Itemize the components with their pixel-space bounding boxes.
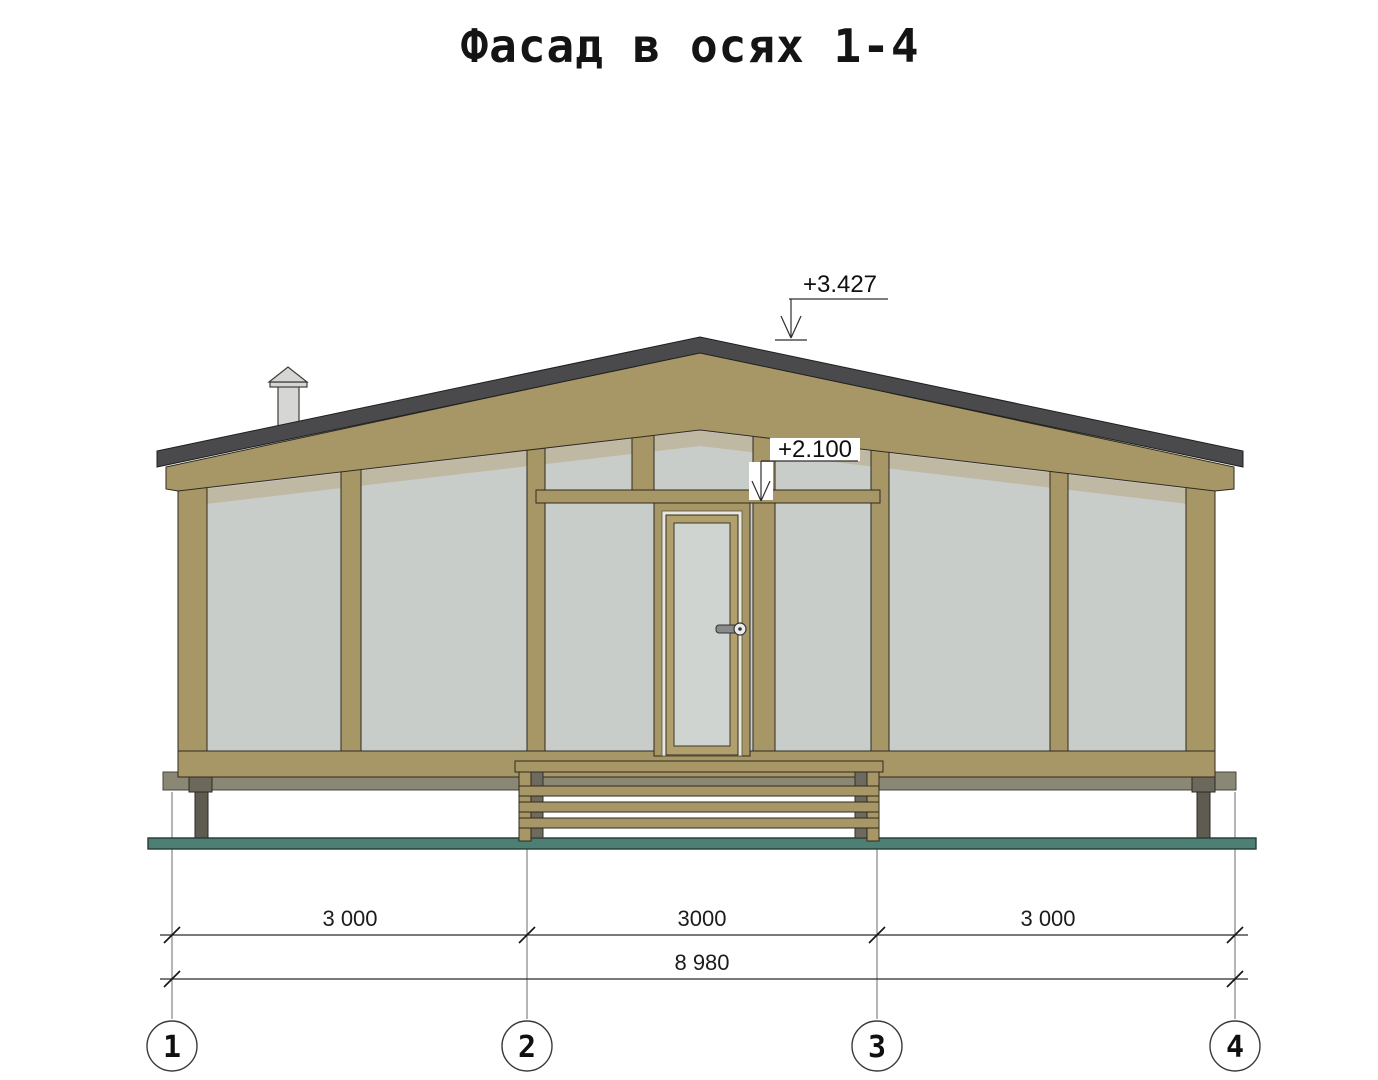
corner-post-right — [1186, 486, 1215, 757]
dim-value-1: 3 000 — [322, 906, 377, 931]
axis-label-2: 2 — [518, 1030, 536, 1065]
chimney-cap — [269, 367, 307, 382]
door-glazing — [674, 523, 730, 746]
entrance-door — [654, 503, 750, 756]
drawing-title: Фасад в осях 1-4 — [460, 19, 919, 73]
axis-label-1: 1 — [163, 1030, 181, 1065]
axis-label-4: 4 — [1226, 1030, 1244, 1065]
step-board — [519, 818, 879, 828]
step-board — [519, 786, 879, 796]
facade-drawing-sheet: Фасад в осях 1-4 — [0, 0, 1378, 1080]
pile-right — [1197, 792, 1210, 840]
step-board — [515, 761, 883, 772]
corner-post-left — [178, 486, 207, 757]
wall-post — [341, 468, 361, 757]
dim-value-total: 8 980 — [674, 950, 729, 975]
level-value-door: +2.100 — [778, 436, 852, 463]
transom-rail — [536, 490, 880, 503]
door-handle-pin — [738, 627, 742, 631]
pile-left — [195, 792, 208, 840]
axis-label-3: 3 — [868, 1030, 886, 1065]
level-value-ridge: +3.427 — [803, 271, 877, 298]
axis-bubbles: 1 2 3 4 — [147, 1021, 1260, 1071]
step-board — [519, 802, 879, 812]
ground-line — [148, 838, 1256, 849]
dim-value-3: 3 000 — [1020, 906, 1075, 931]
chimney-flange — [270, 382, 307, 387]
level-marker-ridge: +3.427 — [775, 271, 888, 340]
facade-drawing: Фасад в осях 1-4 — [0, 0, 1378, 1080]
dimension-chain: 3 000 3000 3 000 8 980 — [160, 906, 1248, 987]
wall-post — [1050, 469, 1068, 757]
dim-value-2: 3000 — [678, 906, 727, 931]
